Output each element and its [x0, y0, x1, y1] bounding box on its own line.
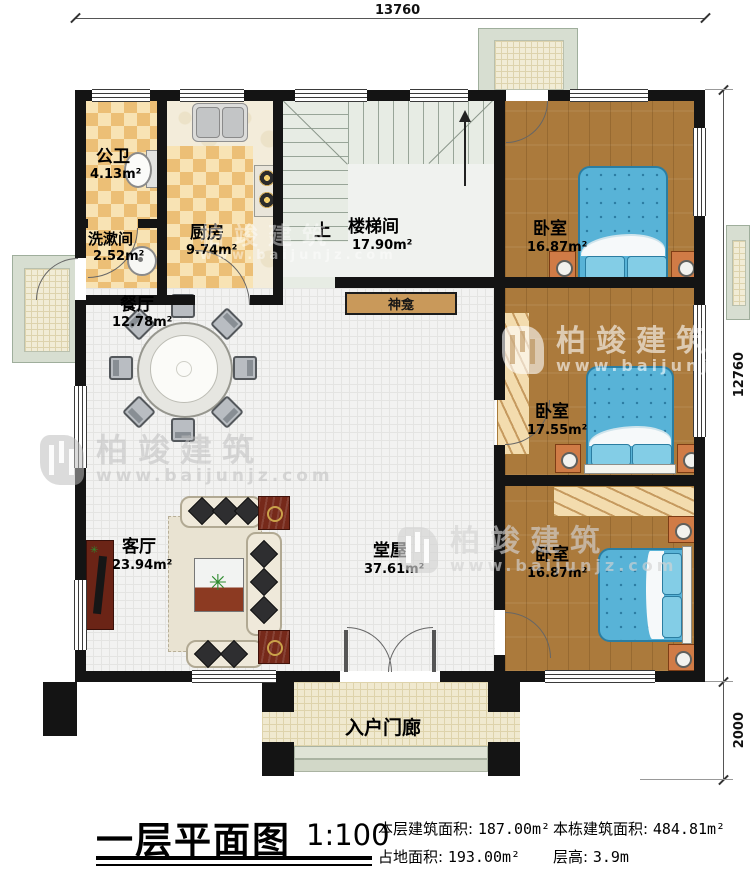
wall [494, 475, 705, 486]
door-opening [340, 671, 440, 682]
porch-column [262, 742, 294, 776]
wall [75, 219, 88, 228]
wall [494, 655, 505, 682]
window [570, 89, 648, 102]
dining-chair [109, 356, 133, 380]
dining-chair [233, 356, 257, 380]
stat-building-area: 本栋建筑面积: 484.81m² [553, 818, 725, 839]
room-area-dining: 12.78m² [112, 315, 172, 330]
right-canopy-floor [732, 240, 746, 306]
sink-basin-left [196, 107, 220, 138]
dining-table-center [176, 361, 192, 377]
stat-label: 本层建筑面积: [378, 820, 473, 838]
dimension-porch-depth: 2000 [729, 712, 750, 748]
window [92, 89, 150, 102]
wardrobe-bottom-bedroom [553, 486, 699, 517]
porch-step-2 [294, 759, 488, 772]
nightstand [555, 444, 581, 473]
stat-floor-area: 本层建筑面积: 187.00m² [378, 818, 550, 839]
stair-direction-arrow [464, 120, 466, 186]
stat-value: 484.81m² [653, 820, 725, 838]
stat-value: 3.9m [593, 848, 629, 866]
room-name-hall: 堂屋 [373, 542, 407, 561]
room-area-kitchen: 9.74m² [186, 243, 237, 258]
up-label: 上 [314, 222, 331, 241]
wall [157, 90, 167, 305]
wall-pier [43, 682, 77, 736]
wall [335, 277, 705, 288]
stat-footprint-area: 占地面积: 193.00m² [378, 846, 520, 867]
plant-icon: ✳ [206, 572, 230, 596]
side-table [258, 630, 290, 664]
window [74, 386, 87, 468]
stat-label: 层高: [553, 848, 588, 866]
room-area-living: 23.94m² [112, 558, 172, 573]
top-canopy-floor [494, 40, 564, 90]
room-name-stairwell: 楼梯间 [348, 218, 399, 237]
porch-step-1 [294, 746, 488, 759]
dimension-height: 12760 [729, 352, 750, 397]
room-name-dining: 餐厅 [120, 296, 154, 315]
room-area-public-bath: 4.13m² [90, 167, 141, 182]
bed-pillow [662, 596, 682, 638]
extension-line [705, 681, 733, 682]
stat-label: 本栋建筑面积: [553, 820, 648, 838]
room-area-bedroom-bottom: 16.87m² [527, 566, 587, 581]
room-area-bedroom-mid: 17.55m² [527, 423, 587, 438]
title-underline [96, 856, 372, 860]
room-name-washroom: 洗漱间 [88, 231, 133, 248]
shrine-cabinet: 神龛 [345, 292, 457, 315]
room-name-bedroom-bottom: 卧室 [535, 546, 569, 565]
wall [494, 445, 505, 610]
room-area-stairwell: 17.90m² [352, 238, 412, 253]
stair-void [283, 242, 348, 277]
stair-flight-top [348, 100, 494, 164]
window [192, 670, 276, 683]
room-name-bedroom-mid: 卧室 [535, 403, 569, 422]
stair-arrow-head-icon [459, 110, 471, 122]
room-area-washroom: 2.52m² [93, 249, 144, 264]
dimension-line-right [723, 90, 724, 682]
room-name-kitchen: 厨房 [190, 224, 224, 243]
wall [138, 219, 158, 228]
bed-pillow [632, 444, 672, 466]
wall [494, 90, 505, 400]
bed-pillow [591, 444, 631, 466]
window [74, 580, 87, 650]
dimension-line-porch [723, 682, 724, 780]
stat-label: 占地面积: [378, 848, 443, 866]
door-opening [506, 90, 548, 101]
window [180, 89, 244, 102]
sink-basin-right [222, 107, 244, 138]
room-area-bedroom-top: 16.87m² [527, 240, 587, 255]
porch-column [488, 682, 520, 712]
room-name-living: 客厅 [122, 538, 156, 557]
dimension-width: 13760 [372, 3, 423, 18]
shrine-label: 神龛 [388, 294, 414, 313]
window [410, 89, 468, 102]
nightstand [668, 644, 695, 671]
room-name-entry-porch: 入户门廊 [345, 718, 421, 739]
room-area-hall: 37.61m² [364, 562, 424, 577]
window [693, 305, 706, 437]
dining-chair [171, 418, 195, 442]
window [545, 670, 655, 683]
side-table [258, 496, 290, 530]
window [693, 128, 706, 216]
stat-floor-height: 层高: 3.9m [553, 846, 629, 867]
floor-plan-canvas: ✳ ✳ 神龛 [0, 0, 750, 873]
extension-line [705, 89, 733, 90]
wall [273, 90, 283, 305]
plant-icon: ✳ [90, 546, 100, 556]
nightstand [668, 516, 695, 543]
bed-headboard [584, 464, 676, 474]
porch-column [488, 742, 520, 776]
bed-headboard [682, 546, 692, 644]
room-name-bedroom-top: 卧室 [533, 220, 567, 239]
porch-column [262, 682, 294, 712]
title-underline [96, 864, 372, 866]
stat-value: 187.00m² [478, 820, 550, 838]
dimension-line-top [75, 18, 705, 19]
room-name-public-bath: 公卫 [96, 148, 130, 167]
extension-line [640, 779, 733, 780]
stat-value: 193.00m² [448, 848, 520, 866]
window [295, 89, 367, 102]
bed-pillow [662, 553, 682, 595]
